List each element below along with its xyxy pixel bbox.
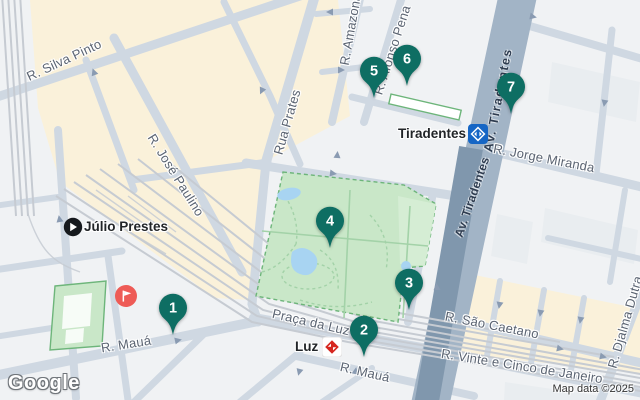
map-marker-4[interactable]: 4: [314, 205, 346, 249]
map-geometry: [0, 0, 640, 400]
svg-text:7: 7: [507, 80, 515, 96]
svg-text:3: 3: [405, 276, 413, 292]
metro-icon[interactable]: [468, 124, 488, 144]
svg-text:2: 2: [360, 323, 368, 339]
google-logo[interactable]: Google: [8, 372, 80, 395]
svg-text:1: 1: [169, 301, 177, 317]
train-station-icon[interactable]: [63, 217, 83, 237]
map-marker-5[interactable]: 5: [358, 55, 390, 99]
svg-text:4: 4: [326, 214, 334, 230]
flag-icon[interactable]: [115, 285, 137, 307]
map-marker-3[interactable]: 3: [393, 267, 425, 311]
map-marker-2[interactable]: 2: [348, 314, 380, 358]
svg-text:5: 5: [370, 64, 378, 80]
map-canvas[interactable]: R. Silva Pinto R. José Paulino Rua Prate…: [0, 0, 640, 400]
map-marker-1[interactable]: 1: [157, 292, 189, 336]
map-marker-7[interactable]: 7: [495, 71, 527, 115]
svg-text:6: 6: [403, 52, 411, 68]
map-data-attribution: Map data ©2025: [553, 383, 635, 395]
poi-label-tiradentes[interactable]: Tiradentes: [398, 126, 466, 141]
poi-label-luz[interactable]: Luz: [295, 339, 318, 354]
cptm-train-icon[interactable]: [322, 337, 342, 357]
map-marker-6[interactable]: 6: [391, 43, 423, 87]
poi-label-julio-prestes[interactable]: Júlio Prestes: [84, 219, 168, 234]
